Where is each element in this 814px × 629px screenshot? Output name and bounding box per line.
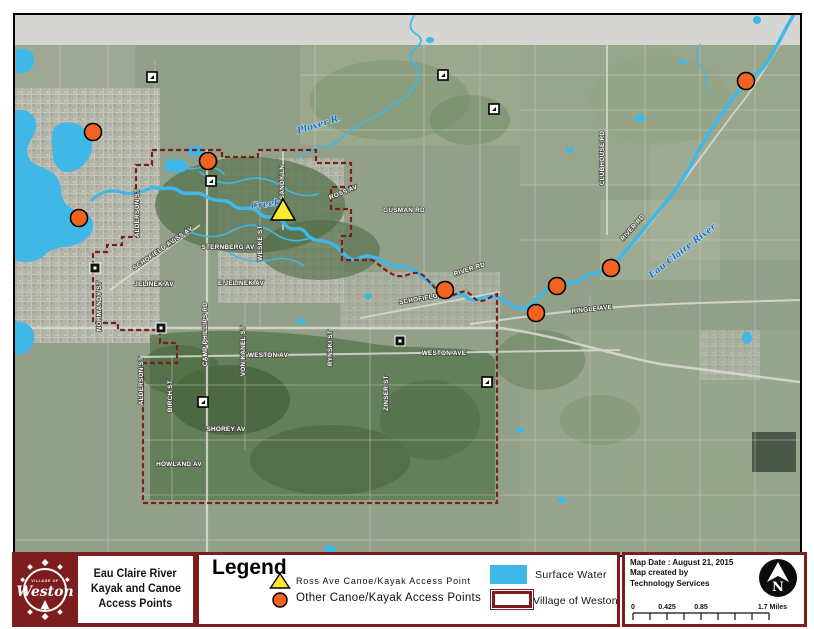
canoe-kayak-access-point-marker	[71, 210, 88, 227]
highway-marker-icon	[489, 104, 499, 114]
road-label: ALDERSON ST	[134, 189, 141, 238]
highway-marker-icon	[156, 323, 166, 333]
map-created-by-line1: Map created by	[630, 568, 733, 578]
scale-label-0: 0	[631, 604, 635, 611]
legend-item-other-access-label: Other Canoe/Kayak Access Points	[296, 592, 481, 604]
legend-surface-water-swatch	[490, 565, 527, 584]
canoe-kayak-access-point-marker	[738, 73, 755, 90]
terrain-layer	[15, 15, 800, 555]
highway-marker-icon	[206, 176, 216, 186]
logo-weston-text: Weston	[16, 584, 73, 600]
map-credits: Map Date : August 21, 2015 Map created b…	[630, 558, 733, 589]
logo-village-of-text: VILLAGE OF	[31, 579, 59, 583]
canoe-kayak-access-point-marker	[603, 260, 620, 277]
highway-marker-icon	[198, 397, 208, 407]
map-title-line3: Access Points	[99, 597, 173, 612]
road-label: ALDERSON ST	[138, 357, 145, 406]
title-block: VILLAGE OF Weston Eau Claire River Kayak…	[12, 552, 197, 627]
scale-label-half: 0.85	[694, 604, 708, 611]
highway-marker-icon	[90, 263, 100, 273]
road-label: GUSMAN RD	[383, 207, 425, 214]
canoe-kayak-access-point-marker	[437, 282, 454, 299]
scale-label-q: 0.425	[658, 604, 676, 611]
road-label: CAMP PHILLIPS RD	[202, 302, 209, 366]
road-label: VON KANEL ST	[240, 326, 247, 376]
road-label: WESTON AV	[248, 352, 289, 359]
road-label: BIRCH ST	[167, 380, 174, 412]
legend-item-village-label: Village of Weston	[533, 595, 618, 607]
map-title-line1: Eau Claire River	[94, 567, 177, 582]
highway-marker-icon	[438, 70, 448, 80]
legend-item-surface-water-label: Surface Water	[535, 569, 607, 581]
map-title-line2: Kayak and Canoe	[90, 582, 180, 597]
north-arrow-n-label: N	[772, 580, 784, 595]
map-document-page: CLUBHOUSE RDRIVER RDRIVER RDRINGLE AVEGU…	[0, 0, 814, 629]
legend-ross-ave-triangle-icon	[269, 571, 291, 590]
north-arrow-icon: N	[757, 557, 799, 599]
imagery-edge-band	[15, 15, 800, 45]
weston-logo: VILLAGE OF Weston	[16, 556, 74, 623]
road-label: HOWLAND AV	[156, 461, 202, 468]
road-label: WESTON AVE	[422, 350, 467, 357]
legend-village-boundary-swatch	[492, 591, 532, 608]
highway-marker-icon	[147, 72, 157, 82]
map-created-by-line2: Technology Services	[630, 579, 733, 589]
road-label: ZINSER ST	[383, 375, 390, 411]
road-label: NORMANDY ST	[96, 281, 103, 331]
scale-bar: 0 0.425 0.85 1.7 Miles	[629, 601, 799, 623]
road-label: WESKE ST	[257, 225, 264, 260]
canoe-kayak-access-point-marker	[549, 278, 566, 295]
info-box: Map Date : August 21, 2015 Map created b…	[622, 552, 807, 627]
legend-item-ross-ave-label: Ross Ave Canoe/Kayak Access Point	[296, 576, 471, 586]
road-label: RYNSKI ST	[327, 330, 334, 366]
map-title: Eau Claire River Kayak and Canoe Access …	[78, 556, 193, 623]
road-label: STERNBERG AV	[201, 244, 255, 251]
legend-box: Legend Ross Ave Canoe/Kayak Access Point…	[196, 552, 620, 627]
road-label: JELINEK AV	[134, 281, 174, 288]
highway-marker-icon	[482, 377, 492, 387]
canoe-kayak-access-point-marker	[85, 124, 102, 141]
map-canvas[interactable]: CLUBHOUSE RDRIVER RDRIVER RDRINGLE AVEGU…	[15, 15, 800, 555]
highway-marker-icon	[395, 336, 405, 346]
canoe-kayak-access-point-marker	[528, 305, 545, 322]
scale-label-full: 1.7 Miles	[758, 604, 787, 611]
map-date: Map Date : August 21, 2015	[630, 558, 733, 568]
canoe-kayak-access-point-marker	[200, 153, 217, 170]
legend-other-access-circle-icon	[271, 591, 289, 609]
road-label: E JELINEK AV	[218, 280, 264, 287]
map-frame: CLUBHOUSE RDRIVER RDRIVER RDRINGLE AVEGU…	[13, 13, 802, 557]
road-label: CLUBHOUSE RD	[599, 131, 606, 186]
road-label: SANDY LN	[279, 165, 286, 200]
road-label: SHOREY AV	[206, 426, 246, 433]
